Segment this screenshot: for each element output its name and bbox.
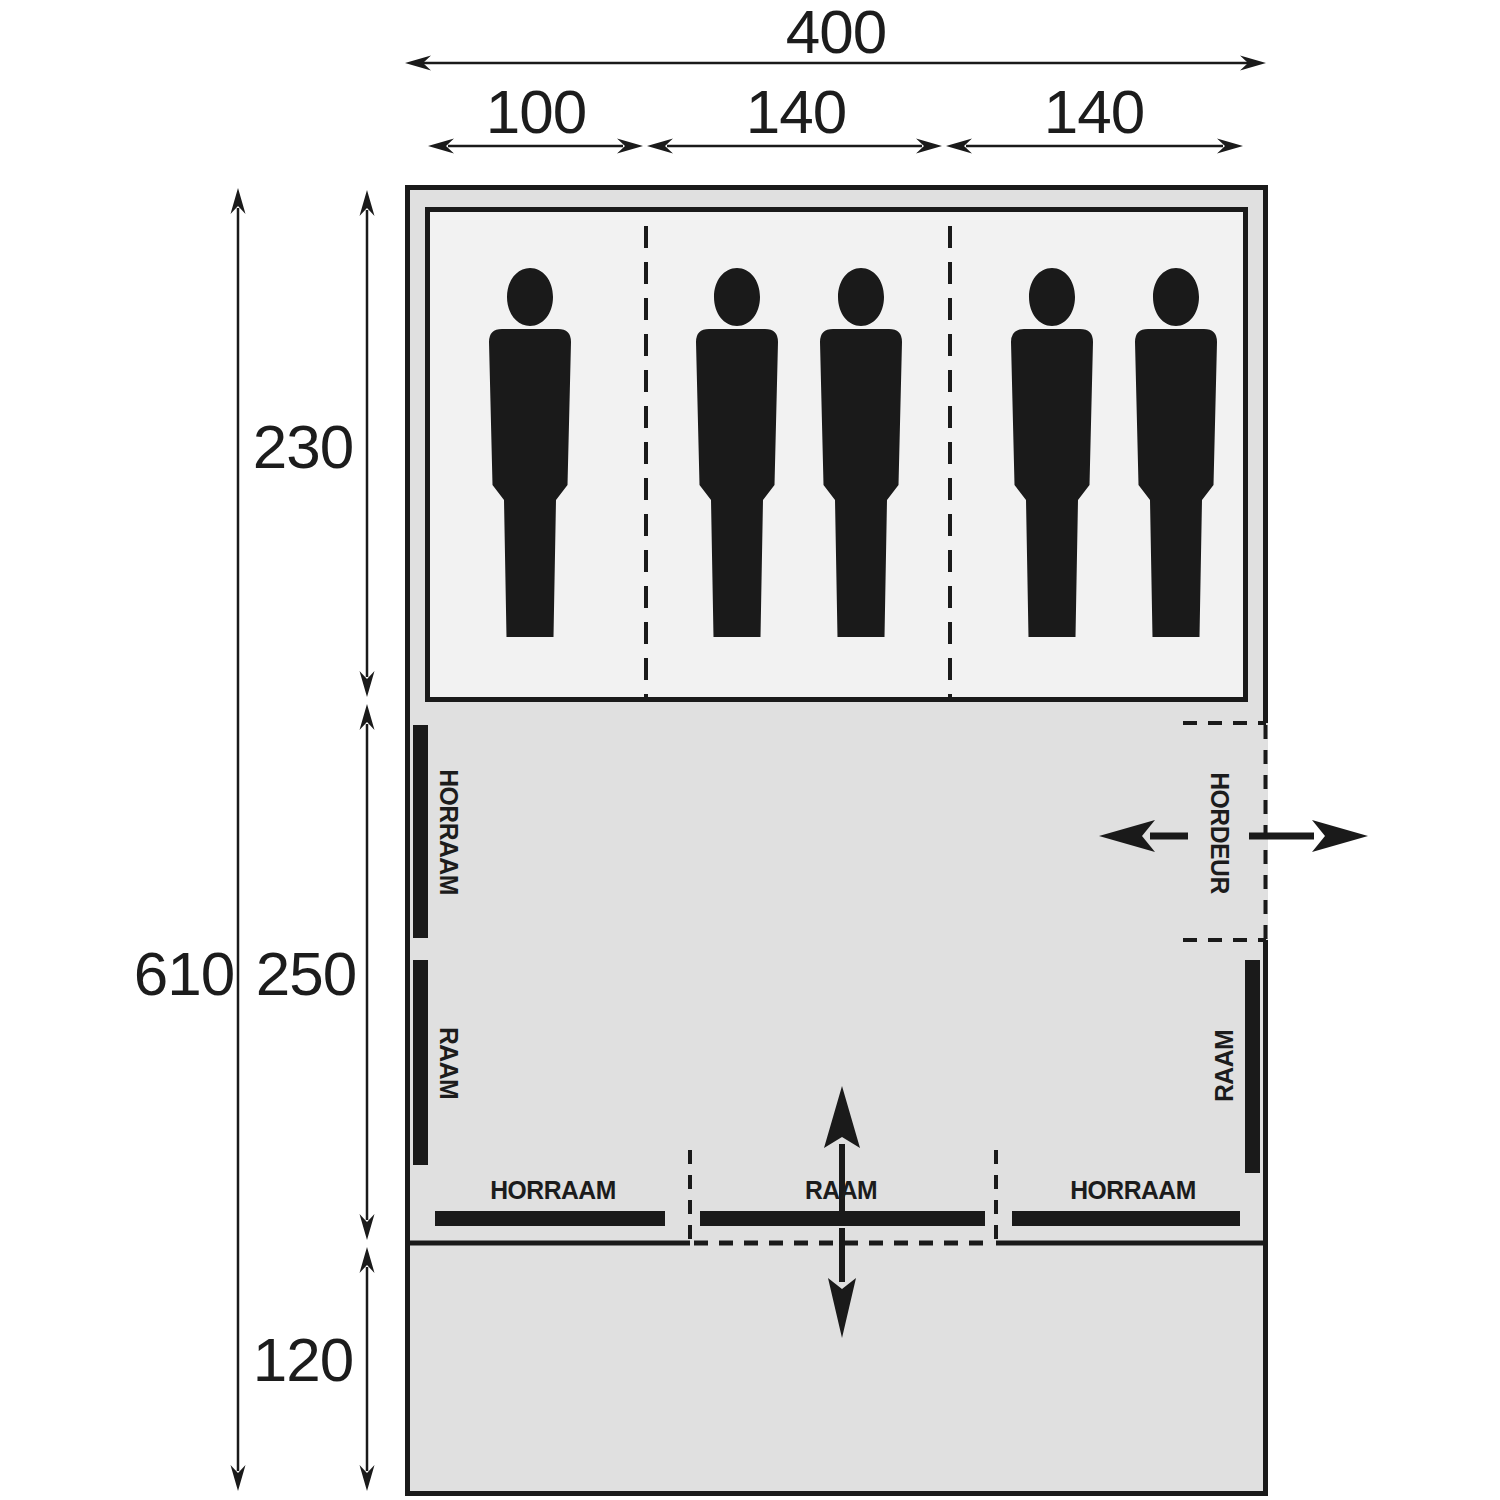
window-bar-right-raam [1245,960,1260,1173]
window-label-left-horraam: HORRAAM [433,769,464,895]
door-label-hordeur: HORDEUR [1204,772,1235,894]
window-bar-bottom-left-horraam [435,1211,665,1226]
floorplan-canvas: 400 100 140 140 230 610 250 120 HORRAAM … [0,0,1500,1500]
dim-label-total-width: 400 [786,0,886,67]
dim-label-cabin-3: 140 [1044,76,1144,147]
window-label-bottom-left-horraam: HORRAAM [490,1175,616,1206]
window-label-bottom-right-horraam: HORRAAM [1070,1175,1196,1206]
front-canopy-fill [405,1243,1268,1496]
window-label-left-raam: RAAM [433,1027,464,1099]
dim-label-total-depth: 610 [134,938,234,1009]
dim-label-living-depth: 250 [256,938,356,1009]
floorplan-drawing [0,0,1500,1500]
window-bar-left-raam [413,960,428,1165]
window-label-right-raam: RAAM [1209,1030,1240,1102]
window-bar-left-horraam [413,725,428,938]
window-label-bottom-raam: RAAM [805,1175,877,1206]
dim-label-cabin-2: 140 [746,76,846,147]
dim-label-cabin-depth: 230 [253,411,353,482]
dim-label-cabin-1: 100 [486,76,586,147]
dim-label-canopy-depth: 120 [253,1324,353,1395]
window-bar-bottom-right-horraam [1012,1211,1240,1226]
door-arrow-right-icon [1312,820,1368,852]
